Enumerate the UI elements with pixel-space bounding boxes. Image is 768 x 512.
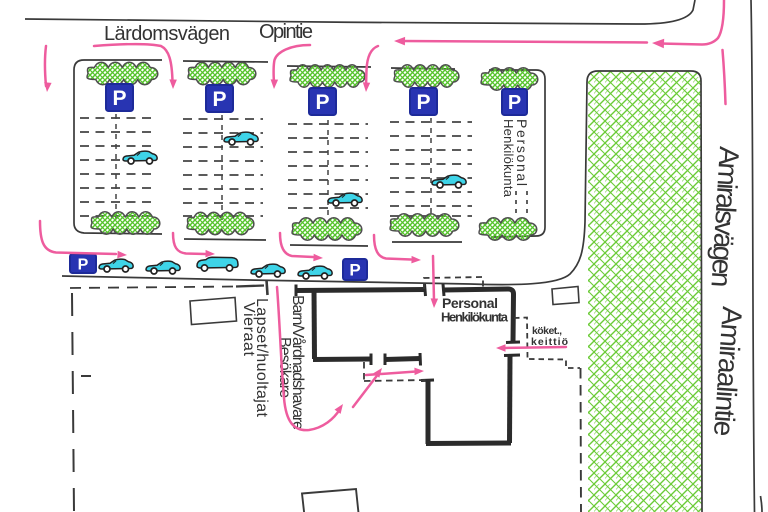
svg-text:Opintie: Opintie	[259, 21, 313, 43]
svg-text:Henkilökunta: Henkilökunta	[441, 310, 509, 325]
svg-text:P: P	[78, 256, 89, 273]
svg-text:P: P	[416, 91, 430, 114]
svg-text:P: P	[349, 261, 360, 280]
svg-text:Lärdomsvägen: Lärdomsvägen	[104, 23, 231, 45]
svg-text:P: P	[508, 92, 521, 114]
svg-text:P: P	[315, 91, 329, 114]
svg-text:P: P	[212, 88, 226, 111]
svg-text:P: P	[112, 87, 126, 110]
svg-text:Henkilökunta: Henkilökunta	[501, 119, 516, 198]
svg-text:Vieraat: Vieraat	[240, 302, 257, 357]
